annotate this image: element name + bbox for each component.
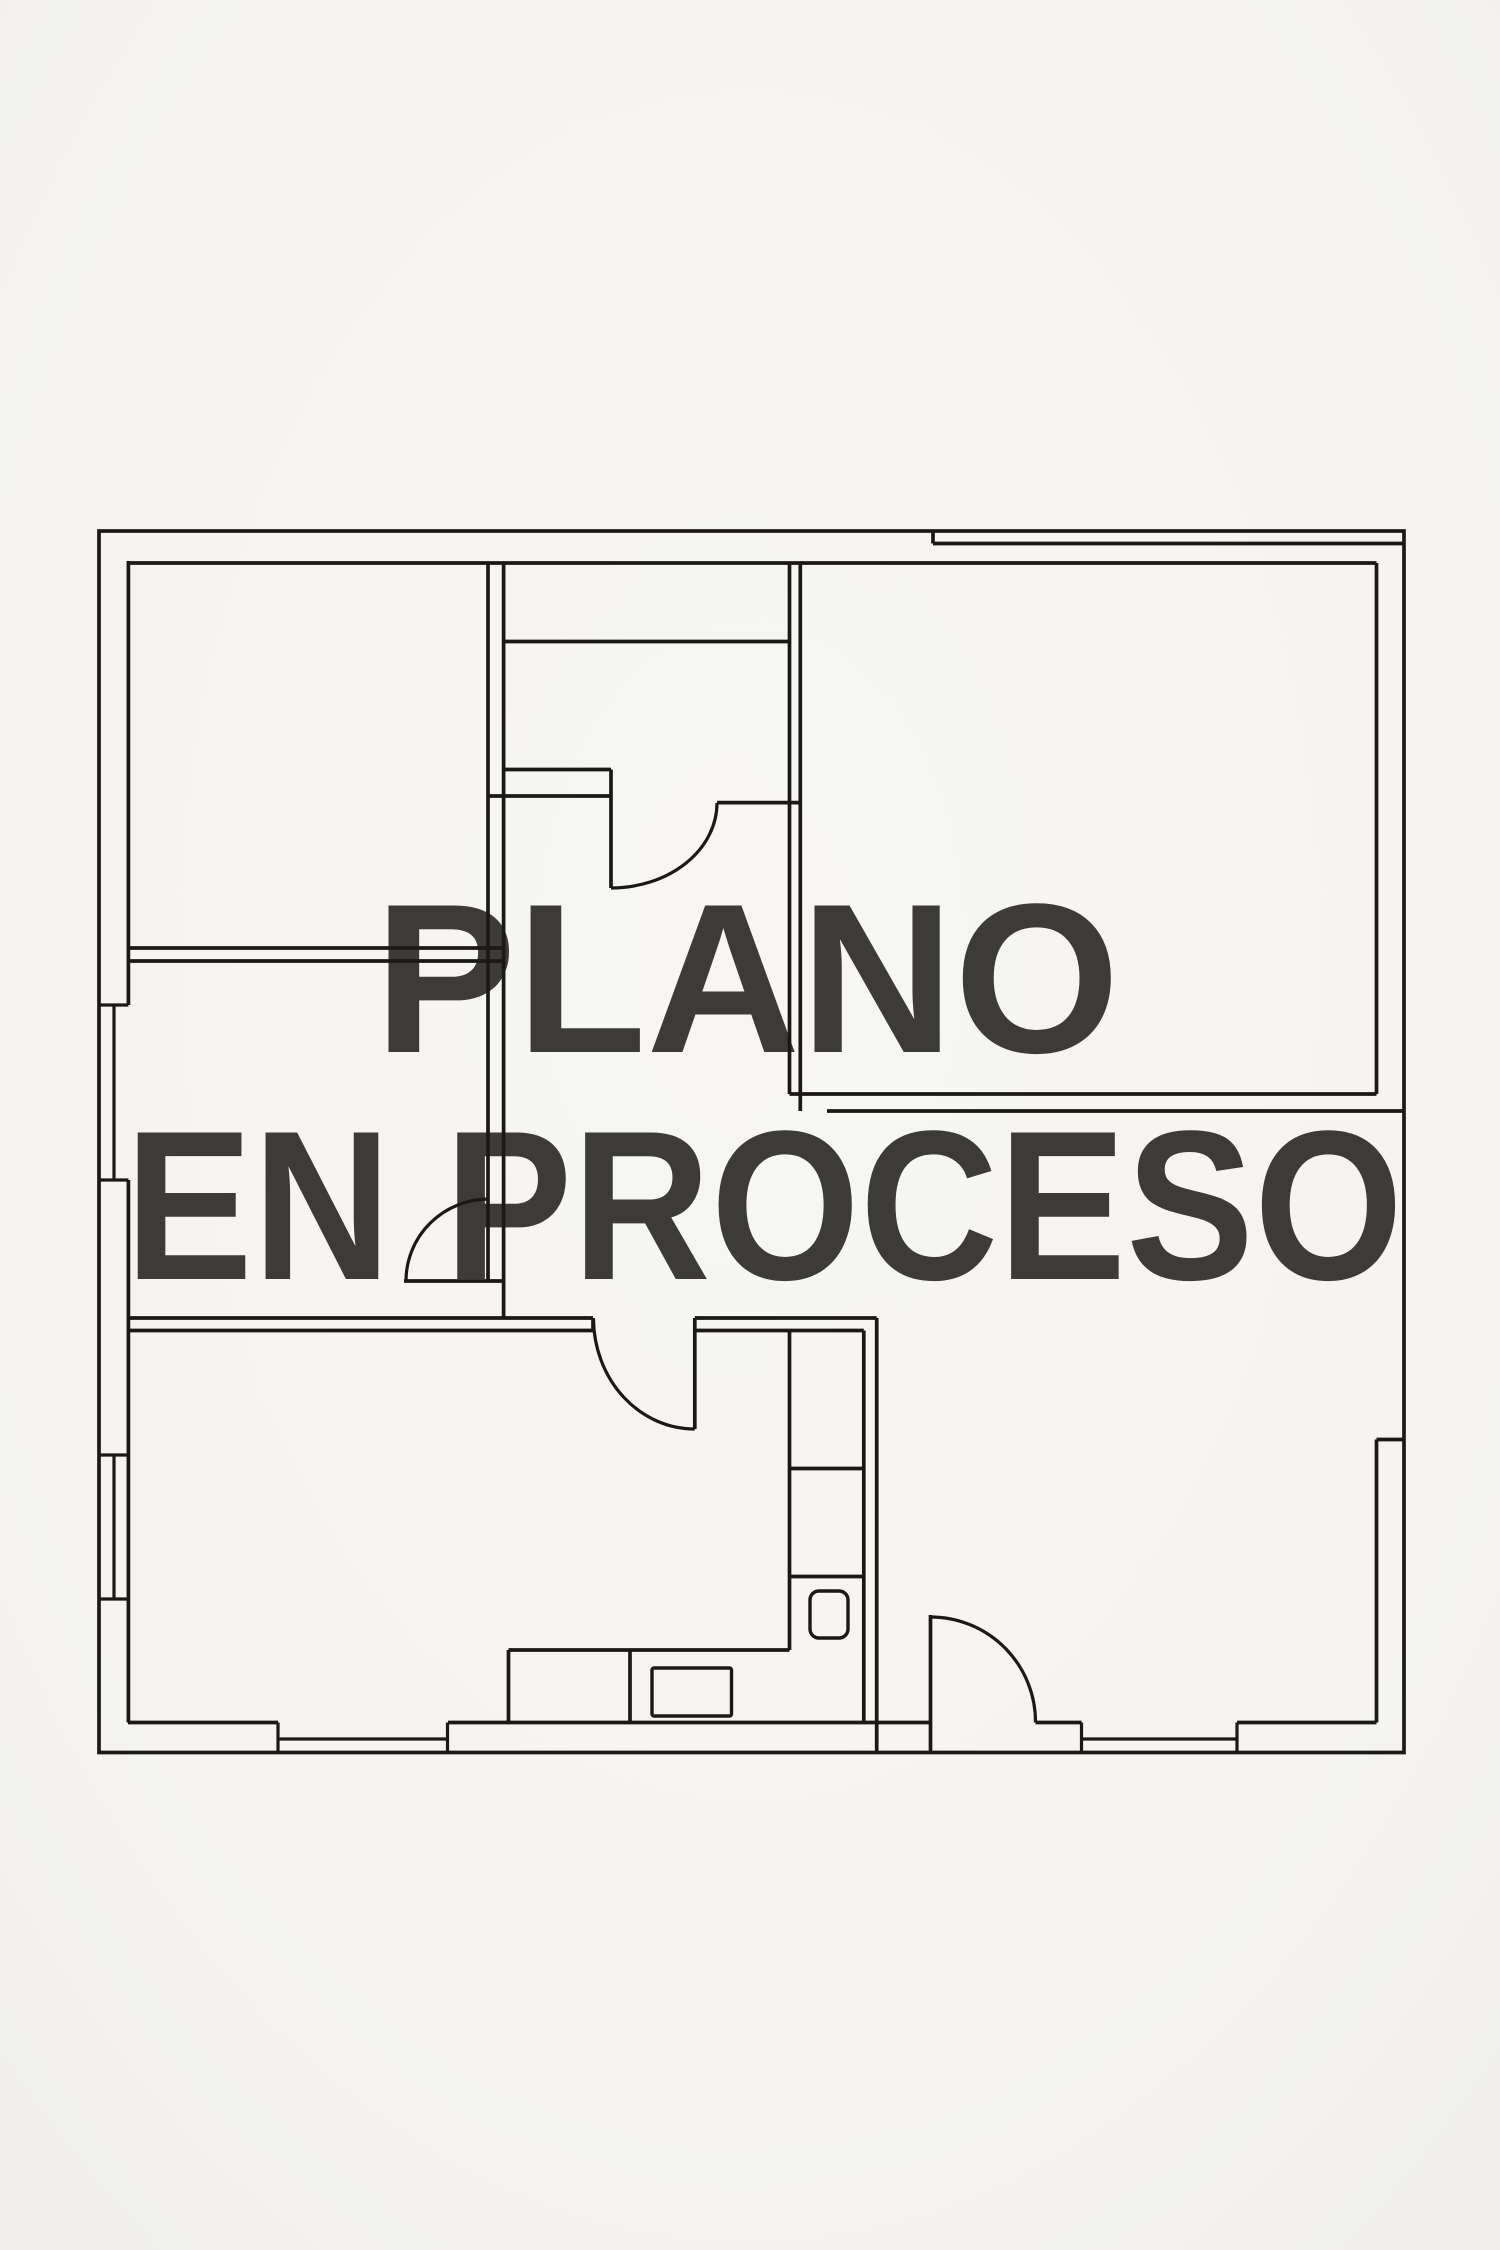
svg-text:PLANO: PLANO — [374, 860, 1120, 1098]
svg-text:EN PROCESO: EN PROCESO — [125, 1087, 1403, 1325]
